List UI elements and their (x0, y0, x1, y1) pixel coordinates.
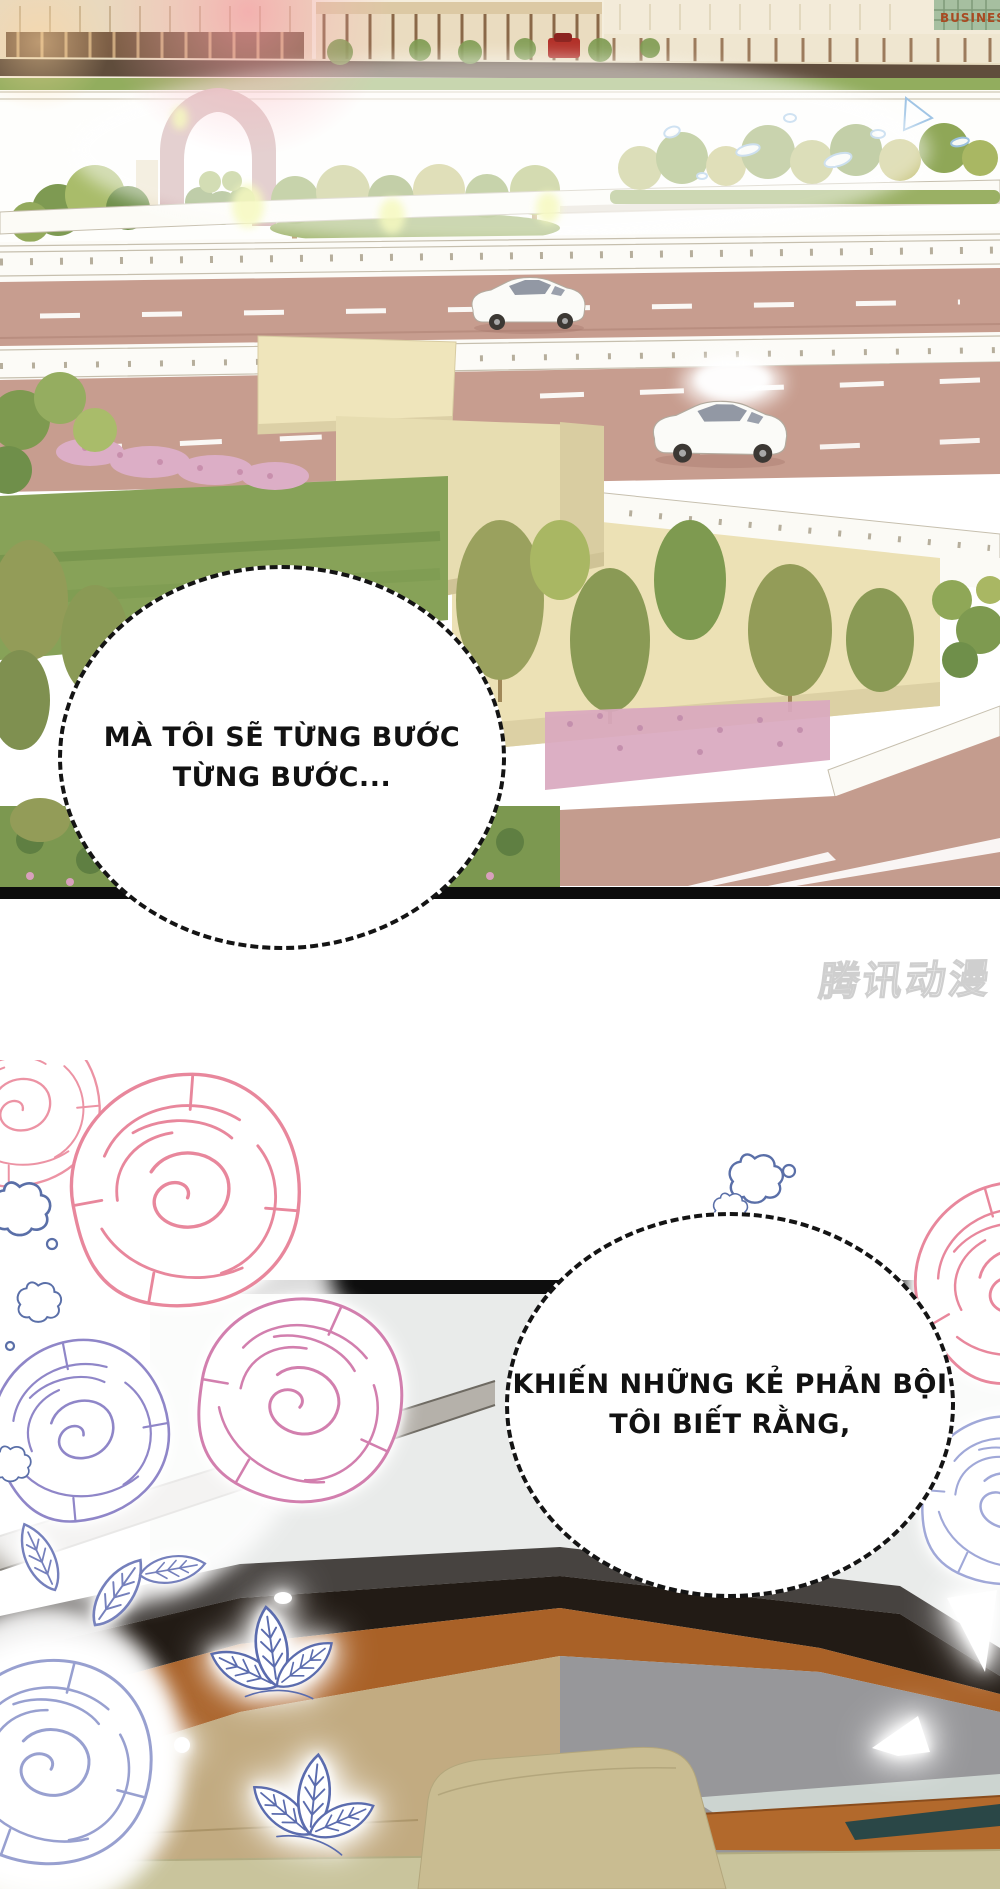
bubble1-line1: MÀ TÔI SẼ TỪNG BƯỚC (104, 718, 460, 758)
seat-headrest (418, 1747, 726, 1889)
thought-bubble-2: KHIẾN NHỮNG KẺ PHẢN BỘI TÔI BIẾT RẰNG, (505, 1212, 955, 1598)
bubble2-line1: KHIẾN NHỮNG KẺ PHẢN BỘI (512, 1365, 947, 1405)
thought-bubble-1: MÀ TÔI SẼ TỪNG BƯỚC TỪNG BƯỚC... (58, 565, 506, 950)
bubble1-line2: TỪNG BƯỚC... (173, 758, 391, 798)
tencent-comics-watermark: 腾讯动漫 (816, 947, 996, 1008)
bubble2-line2: TÔI BIẾT RẰNG, (609, 1405, 850, 1445)
business-sign: BUSINESS (940, 11, 1000, 25)
upper-road (0, 230, 1000, 348)
comic-page: BUSINESS (0, 0, 1000, 1889)
